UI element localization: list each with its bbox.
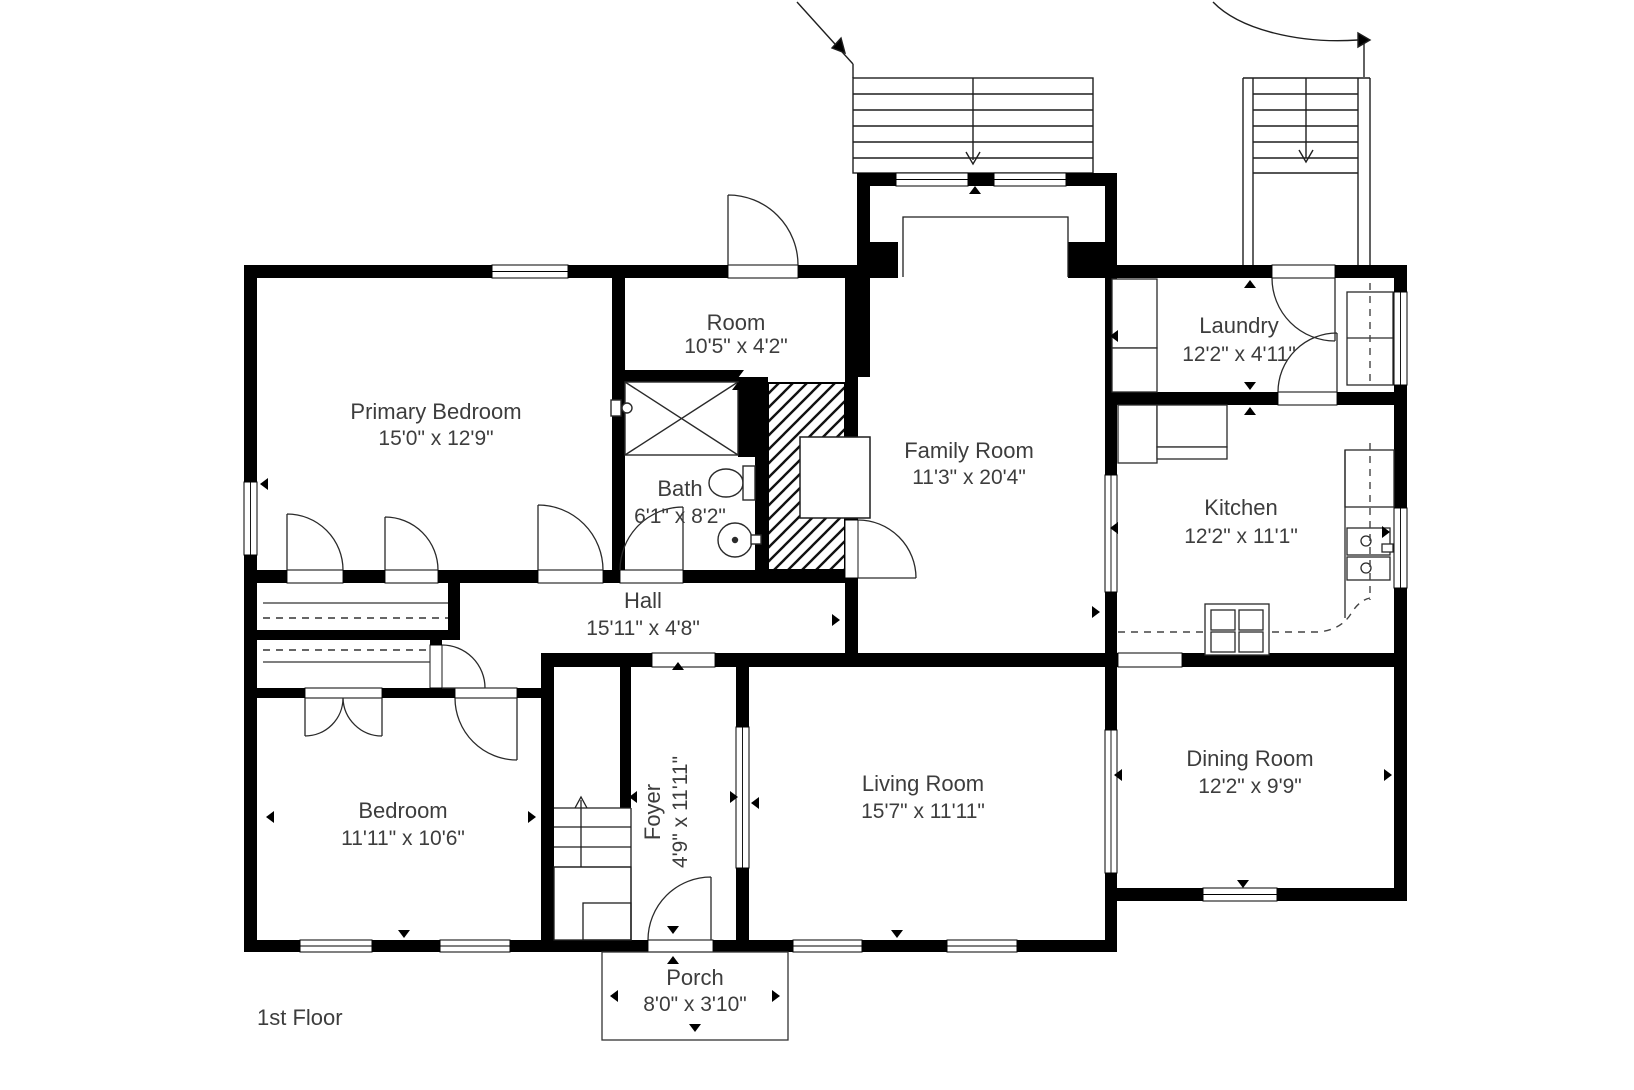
label-bedroom-dims: 11'11" x 10'6" <box>341 827 465 850</box>
fireplace-firebox <box>800 437 870 518</box>
floor-plan-page: Primary Bedroom 15'0" x 12'9" Room 10'5"… <box>0 0 1634 1090</box>
label-room-name: Room <box>707 310 766 335</box>
label-bedroom-name: Bedroom <box>358 798 447 823</box>
label-foyer-dims: 4'9" x 11'11" <box>669 756 692 868</box>
label-room-dims: 10'5" x 4'2" <box>684 335 788 358</box>
label-living-room-dims: 15'7" x 11'11" <box>861 800 985 823</box>
floor-title: 1st Floor <box>257 1005 343 1030</box>
toilet-icon <box>709 466 755 500</box>
label-laundry-name: Laundry <box>1199 313 1279 338</box>
label-family-room-name: Family Room <box>904 438 1034 463</box>
label-primary-bedroom-name: Primary Bedroom <box>350 399 521 424</box>
label-laundry-dims: 12'2" x 4'11" <box>1182 343 1296 366</box>
label-hall-dims: 15'11" x 4'8" <box>586 617 700 640</box>
stove-icon <box>1205 604 1269 655</box>
label-hall-name: Hall <box>624 588 662 613</box>
label-dining-room-name: Dining Room <box>1186 746 1313 771</box>
label-foyer-name: Foyer <box>640 784 665 840</box>
shower-icon <box>611 382 738 455</box>
washer-icon <box>1112 279 1157 348</box>
label-bath-name: Bath <box>657 476 702 501</box>
fridge-icon <box>1157 405 1227 447</box>
label-dining-room-dims: 12'2" x 9'9" <box>1198 775 1302 798</box>
label-living-room-name: Living Room <box>862 771 984 796</box>
dryer-icon <box>1112 348 1157 392</box>
fridge-shelf <box>1157 447 1227 459</box>
label-kitchen-name: Kitchen <box>1204 495 1277 520</box>
label-family-room-dims: 11'3" x 20'4" <box>912 466 1026 489</box>
label-porch-name: Porch <box>666 965 723 990</box>
kitchen-corner-cabinet <box>1118 405 1157 463</box>
label-porch-dims: 8'0" x 3'10" <box>643 993 747 1016</box>
label-primary-bedroom-dims: 15'0" x 12'9" <box>378 427 493 450</box>
label-bath-dims: 6'1" x 8'2" <box>634 505 726 528</box>
sink-faucet-icon <box>1382 544 1393 552</box>
label-kitchen-dims: 12'2" x 11'1" <box>1184 525 1298 548</box>
floor-plan-svg: Primary Bedroom 15'0" x 12'9" Room 10'5"… <box>0 0 1634 1090</box>
